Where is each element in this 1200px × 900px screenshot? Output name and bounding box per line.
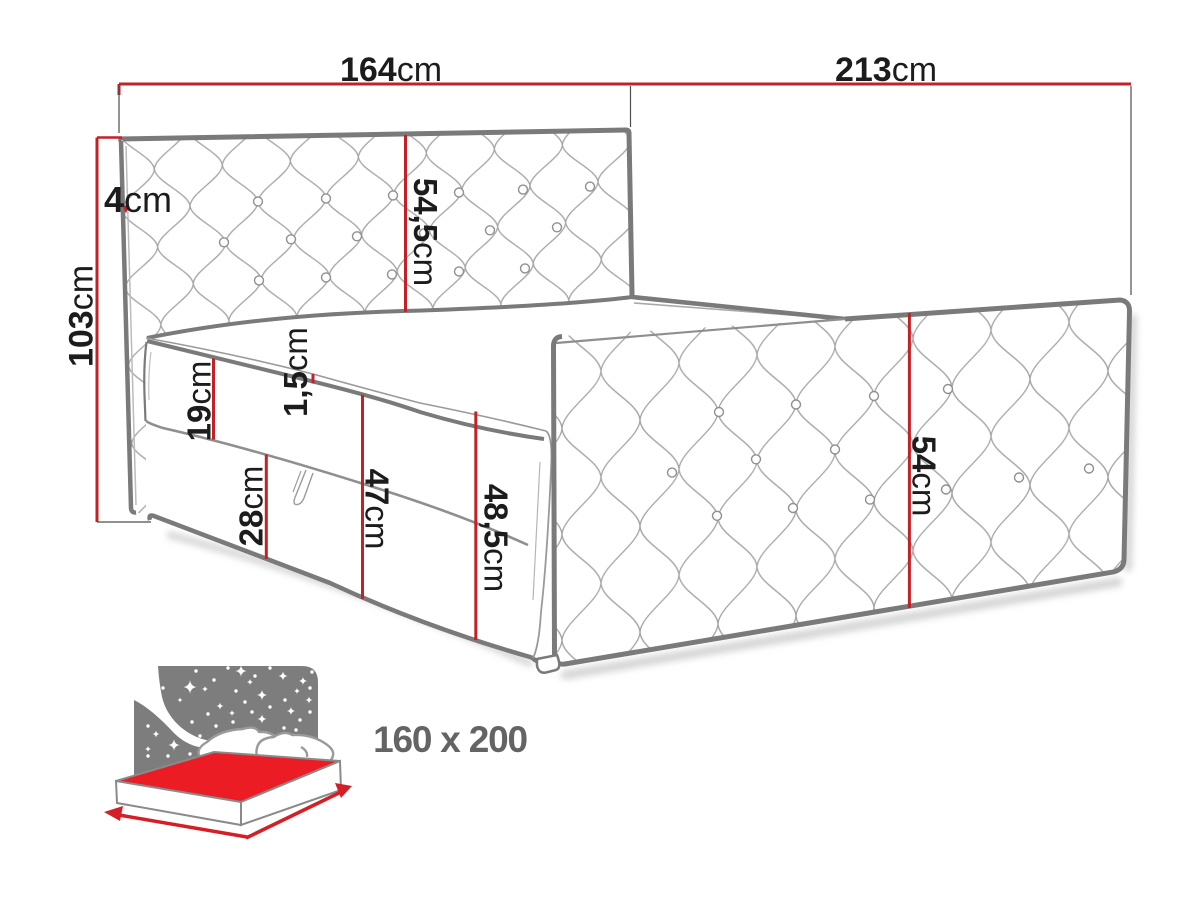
svg-text:54,5cm: 54,5cm bbox=[407, 178, 444, 286]
svg-text:1,5cm: 1,5cm bbox=[277, 327, 314, 417]
svg-text:19cm: 19cm bbox=[181, 361, 218, 442]
svg-text:103cm: 103cm bbox=[63, 265, 101, 367]
svg-text:4cm: 4cm bbox=[104, 179, 172, 220]
svg-text:213cm: 213cm bbox=[835, 51, 937, 89]
svg-text:164cm: 164cm bbox=[340, 51, 442, 89]
svg-text:48,5cm: 48,5cm bbox=[477, 484, 514, 592]
svg-text:47cm: 47cm bbox=[359, 469, 396, 550]
svg-text:54cm: 54cm bbox=[906, 436, 943, 517]
svg-text:160 x 200: 160 x 200 bbox=[373, 719, 527, 760]
svg-text:28cm: 28cm bbox=[232, 466, 269, 547]
